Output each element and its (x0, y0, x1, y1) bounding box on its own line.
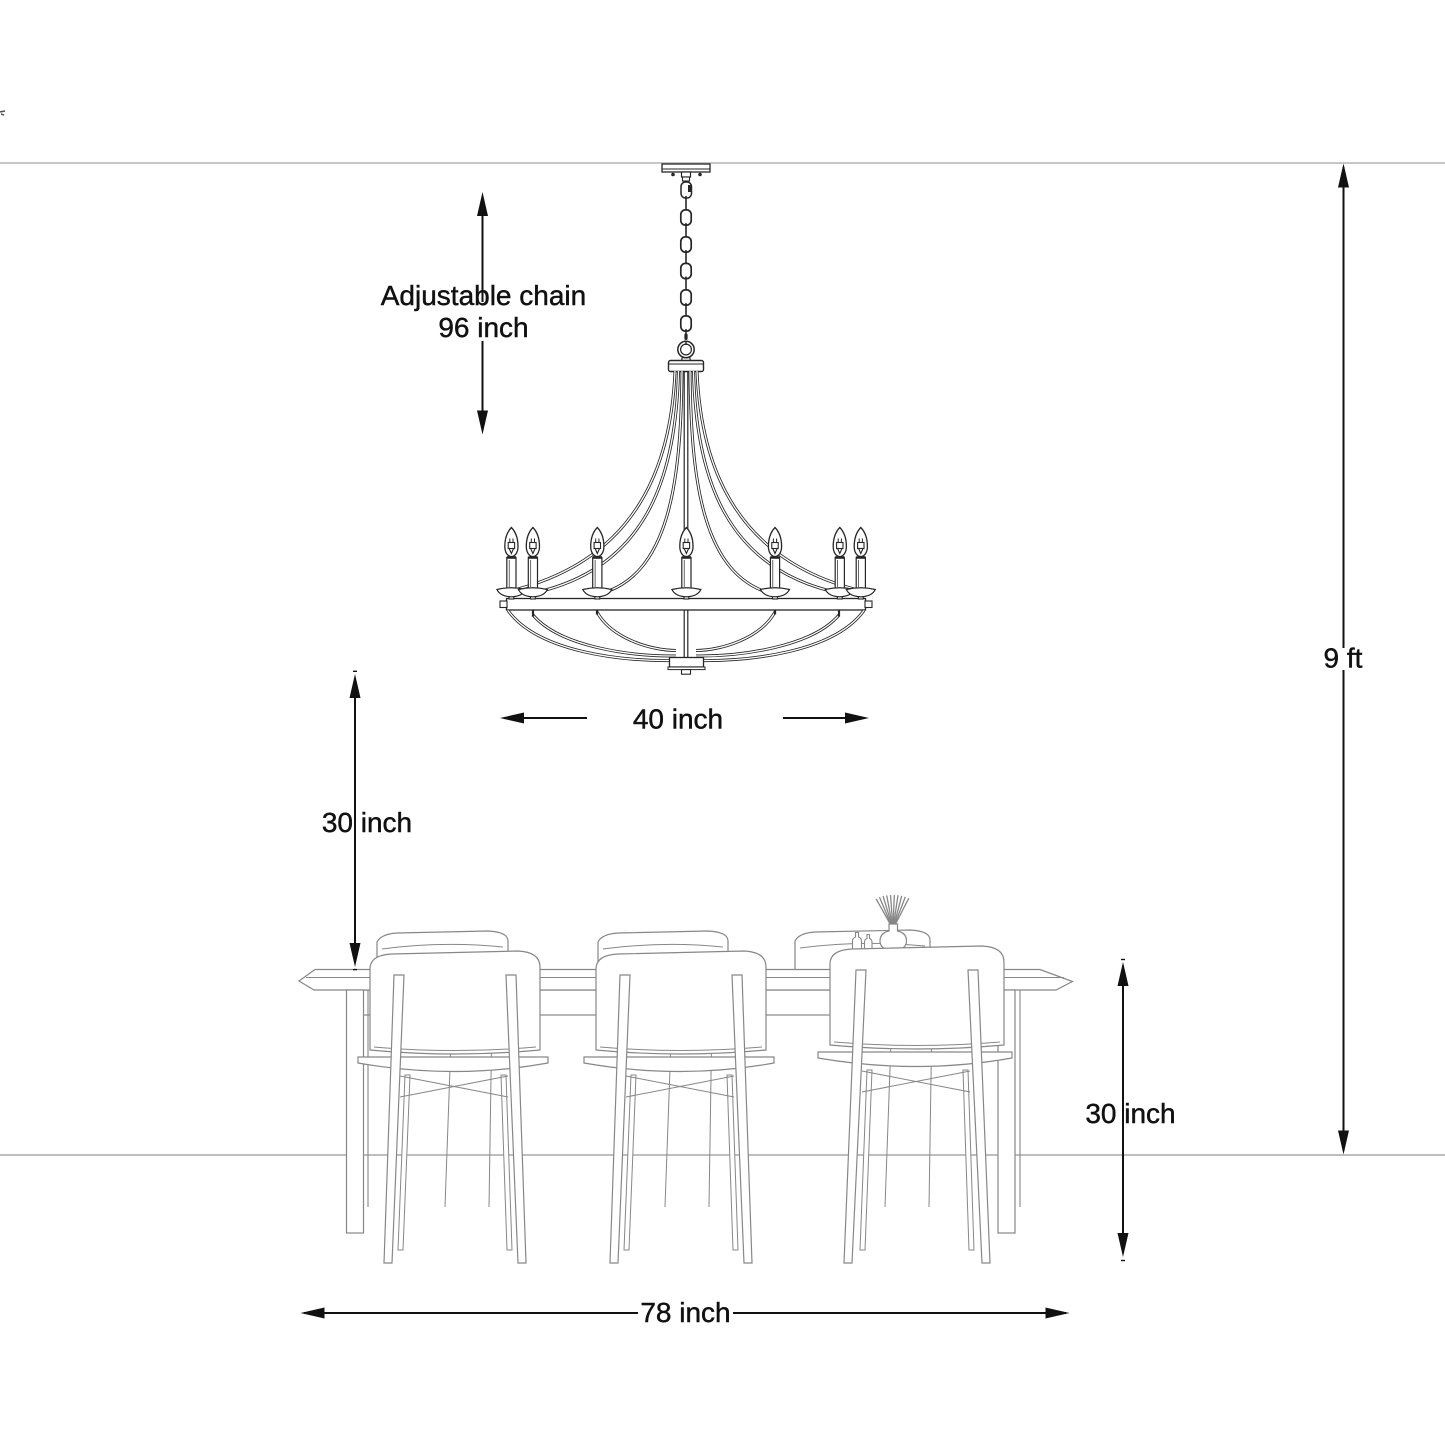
svg-text:40 inch: 40 inch (633, 703, 723, 734)
svg-text:9 ft: 9 ft (1324, 642, 1363, 673)
svg-text:30 inch: 30 inch (1085, 1098, 1175, 1129)
svg-text:78 inch: 78 inch (640, 1297, 730, 1328)
svg-text:96 inch: 96 inch (438, 312, 528, 343)
svg-text:30 inch: 30 inch (322, 807, 412, 838)
svg-text:Adjustable chain: Adjustable chain (381, 280, 586, 311)
